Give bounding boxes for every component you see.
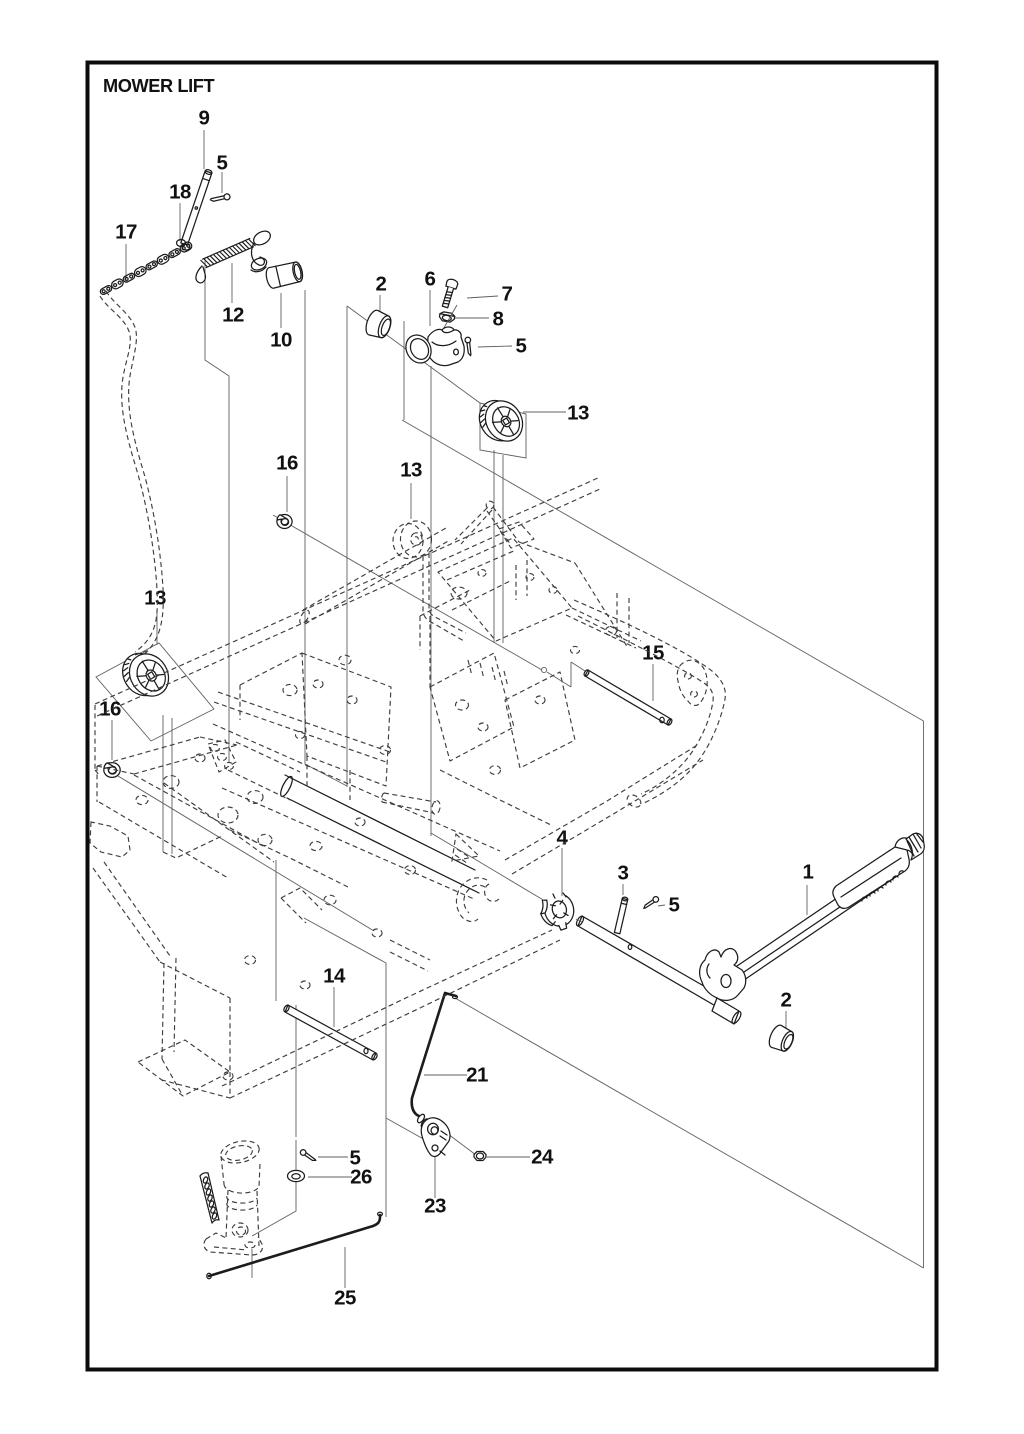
svg-text:13: 13 [400, 459, 422, 482]
svg-text:15: 15 [642, 642, 664, 665]
svg-text:16: 16 [276, 452, 298, 475]
svg-text:9: 9 [199, 107, 210, 130]
svg-text:10: 10 [270, 329, 292, 352]
svg-text:8: 8 [493, 308, 504, 331]
svg-text:5: 5 [516, 335, 527, 358]
svg-text:6: 6 [425, 268, 436, 291]
svg-text:2: 2 [376, 273, 387, 296]
svg-text:5: 5 [217, 152, 228, 175]
svg-text:26: 26 [350, 1166, 372, 1189]
svg-text:17: 17 [115, 221, 137, 244]
svg-text:3: 3 [618, 862, 629, 885]
svg-text:18: 18 [169, 181, 191, 204]
svg-text:13: 13 [567, 402, 589, 425]
svg-text:5: 5 [669, 894, 680, 917]
svg-text:12: 12 [222, 304, 244, 327]
svg-text:23: 23 [424, 1195, 446, 1218]
svg-text:14: 14 [323, 965, 346, 988]
svg-text:25: 25 [334, 1287, 356, 1310]
svg-text:MOWER LIFT: MOWER LIFT [103, 76, 214, 96]
svg-text:24: 24 [531, 1146, 554, 1169]
svg-text:21: 21 [466, 1064, 488, 1087]
svg-text:2: 2 [781, 989, 792, 1012]
svg-text:16: 16 [99, 698, 121, 721]
svg-text:7: 7 [502, 283, 513, 306]
svg-text:1: 1 [803, 861, 814, 884]
